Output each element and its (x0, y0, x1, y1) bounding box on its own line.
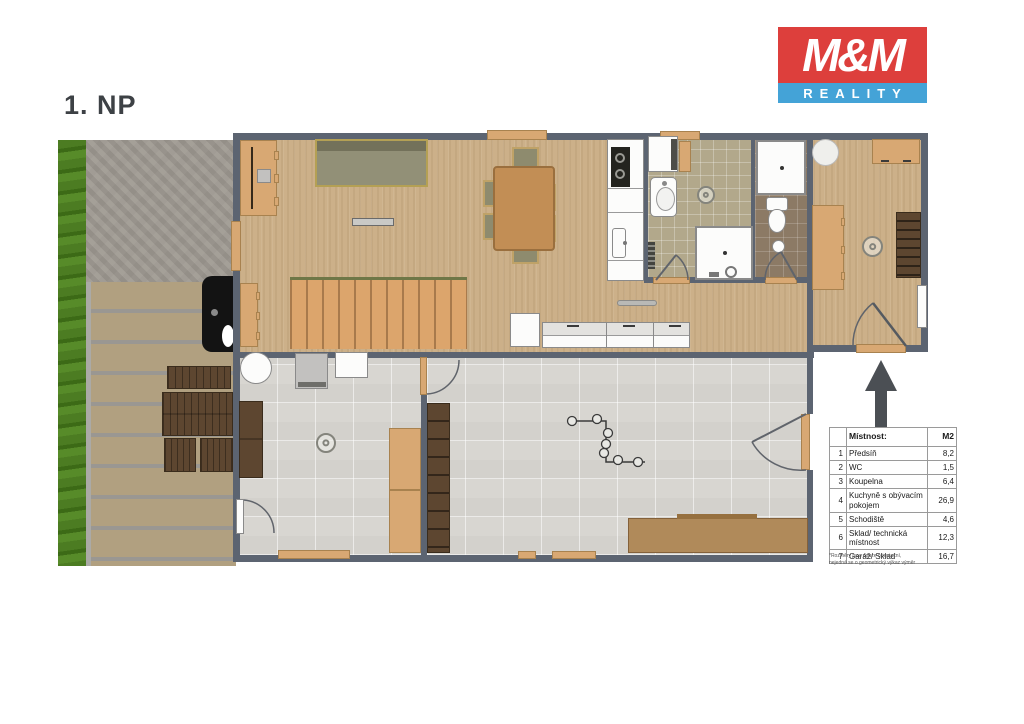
bathroom-door-threshold (653, 277, 690, 284)
legend-row: 2 WC 1,5 (830, 460, 957, 474)
garage-shelving (427, 403, 450, 553)
window-bottom-garage-b (552, 551, 596, 559)
desk-knob (841, 218, 845, 226)
legend-row: 1 Předsíň 8,2 (830, 446, 957, 460)
toilet-bowl (768, 209, 786, 233)
workbench-backsplash (677, 514, 757, 519)
legend-header-room: Místnost: (847, 428, 928, 447)
room-name: Koupelna (847, 475, 928, 489)
storage-garage-door-leaf (420, 357, 427, 395)
patio-table-large (162, 392, 233, 436)
hedge-strip (58, 140, 86, 566)
stair-cabinet (240, 283, 258, 347)
legend-header-area: M2 (928, 428, 957, 447)
hallway-cabinet-top (872, 139, 920, 164)
cooktop (611, 147, 630, 187)
room-name: Schodiště (847, 512, 928, 526)
legend-footnote: *Rozměry jsou pouze orientační, nejedná … (829, 553, 915, 566)
wardrobe (240, 140, 277, 216)
sofa (315, 139, 428, 187)
faucet (623, 241, 627, 245)
legend-row: 4 Kuchyně s obývacím pokojem 26,9 (830, 489, 957, 512)
washing-machine (648, 136, 678, 172)
patio-chair (200, 438, 233, 472)
shower-bathroom (695, 226, 753, 280)
room-area: 16,7 (928, 550, 957, 564)
cabinet-handle (881, 160, 889, 162)
counter-divider (608, 188, 643, 189)
footnote-line: nejedná se o geometrický výkaz výměr (829, 560, 915, 567)
bathroom-cabinet (679, 141, 691, 172)
dining-chair (512, 147, 539, 168)
kitchen-counter-tall (607, 139, 644, 281)
pendant-light (617, 300, 657, 306)
counter-split (606, 323, 607, 347)
boiler (240, 352, 272, 384)
wardrobe-knob (274, 197, 279, 206)
floor-label: 1. NP (64, 90, 137, 121)
radiator (648, 242, 655, 269)
storage-appliance (335, 352, 368, 378)
room-number: 6 (830, 526, 847, 549)
shower-fixture (725, 266, 737, 278)
legend-row: 3 Koupelna 6,4 (830, 475, 957, 489)
drawer-handle (623, 325, 635, 327)
room-number: 1 (830, 446, 847, 460)
room-area: 8,2 (928, 446, 957, 460)
room-number: 3 (830, 475, 847, 489)
storage-cabinet (389, 428, 421, 490)
wall-hallway-bottom-left (807, 345, 856, 352)
wardrobe-knob (274, 174, 279, 183)
grill-knob (211, 309, 218, 316)
garage-side-door-leaf (801, 414, 810, 470)
room-number: 4 (830, 489, 847, 512)
wall-bath-bottom-c (797, 277, 813, 283)
drawer-handle (669, 325, 681, 327)
room-name: Kuchyně s obývacím pokojem (847, 489, 928, 512)
washer-controls (298, 382, 326, 387)
kitchen-counter-row (542, 322, 690, 348)
desk-knob (841, 272, 845, 280)
cabinet-knob (256, 332, 260, 340)
room-name: WC (847, 460, 928, 474)
legend-row: 6 Sklad/ technická místnost 12,3 (830, 526, 957, 549)
hallway-shoe-rack (896, 212, 921, 278)
room-number: 5 (830, 512, 847, 526)
room-area: 12,3 (928, 526, 957, 549)
hallway-desk (812, 205, 844, 290)
cabinet-knob (256, 292, 260, 300)
room-area: 4,6 (928, 512, 957, 526)
mm-reality-logo: M&M REALITY (778, 27, 927, 103)
staircase (290, 277, 467, 349)
cooktop-burner (615, 169, 625, 179)
terrace-door (231, 221, 241, 271)
shower-wc (756, 140, 806, 195)
counter-divider (608, 212, 643, 213)
basin-faucet (662, 181, 667, 186)
counter-divider (608, 260, 643, 261)
logo-mm-text: M&M (778, 27, 927, 83)
window-top-dining (487, 130, 547, 140)
room-number: 2 (830, 460, 847, 474)
washer-dryer (295, 353, 328, 389)
legend-header-num (830, 428, 847, 447)
storage-ceiling-light (316, 433, 336, 453)
wall-bath-bottom-a (644, 277, 653, 283)
workbench (628, 518, 808, 553)
wall-hallway-bottom-right (906, 345, 928, 352)
room-area: 26,9 (928, 489, 957, 512)
legend-row: 5 Schodiště 4,6 (830, 512, 957, 526)
window-bottom-garage-a (518, 551, 536, 559)
cabinet-knob (256, 312, 260, 320)
wc-door-threshold (765, 277, 797, 284)
window-bottom-storage (278, 550, 350, 559)
cabinet-handle (903, 160, 911, 162)
shower-drain (723, 251, 727, 255)
room-name: Předsíň (847, 446, 928, 460)
legend-header-row: Místnost: M2 (830, 428, 957, 447)
room-legend-table: Místnost: M2 1 Předsíň 8,2 2 WC 1,5 3 Ko… (829, 427, 957, 564)
desk-knob (841, 246, 845, 254)
wardrobe-shelf (257, 169, 271, 183)
floorplan-page: 1. NP M&M REALITY (0, 0, 1024, 724)
logo-reality-text: REALITY (778, 83, 927, 103)
shower-fixture (709, 272, 719, 277)
wardrobe-knob (274, 151, 279, 160)
patio-chair (164, 438, 196, 472)
dining-table (493, 166, 555, 251)
hallway-rug (812, 139, 839, 166)
grill (202, 276, 234, 352)
entrance-door-threshold (856, 344, 906, 353)
cooktop-burner (615, 153, 625, 163)
shower-drain (780, 166, 784, 170)
room-name: Sklad/ technická místnost (847, 526, 928, 549)
hallway-ceiling-light (862, 236, 883, 257)
basin-bowl (656, 187, 675, 211)
concrete-patio (86, 140, 235, 282)
entrance-arrow-icon (865, 360, 897, 428)
room-area: 6,4 (928, 475, 957, 489)
wall-garage-right-upper (807, 352, 813, 414)
storage-shelf (239, 401, 263, 478)
wardrobe-rod (251, 147, 253, 209)
storage-cabinet (389, 490, 421, 553)
window-hallway-right (917, 285, 927, 328)
wall-left (233, 133, 240, 562)
kitchen-sink (612, 228, 626, 258)
room-area: 1,5 (928, 460, 957, 474)
fridge (510, 313, 540, 347)
washing-machine-panel (671, 139, 677, 170)
washbasin (650, 177, 677, 217)
tv (352, 218, 394, 226)
counter-split (653, 323, 654, 347)
bathroom-ceiling-light (697, 186, 715, 204)
storage-entry-door-leaf (236, 499, 244, 534)
patio-table-small (167, 366, 231, 389)
drawer-handle (567, 325, 579, 327)
floor-drain (772, 240, 785, 253)
